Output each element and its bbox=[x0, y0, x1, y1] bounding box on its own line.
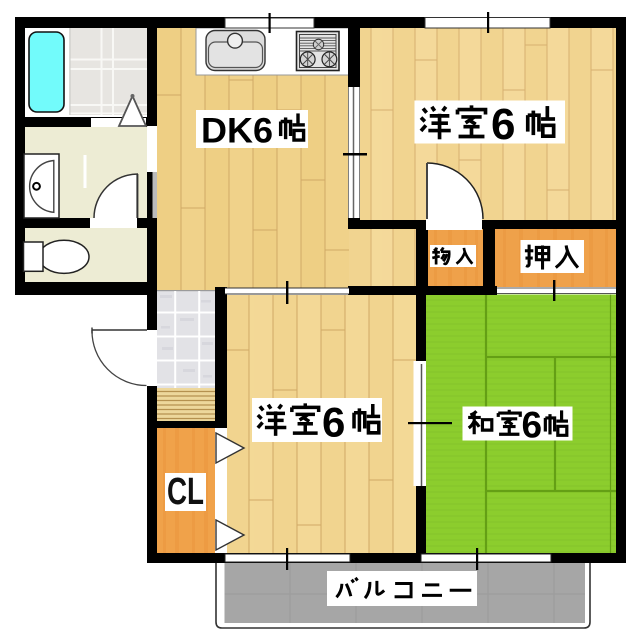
svg-text:CL: CL bbox=[167, 471, 204, 513]
svg-text:6: 6 bbox=[522, 405, 543, 446]
svg-text:DK6: DK6 bbox=[201, 112, 273, 151]
svg-text:6: 6 bbox=[322, 399, 345, 446]
svg-text:6: 6 bbox=[491, 100, 515, 149]
